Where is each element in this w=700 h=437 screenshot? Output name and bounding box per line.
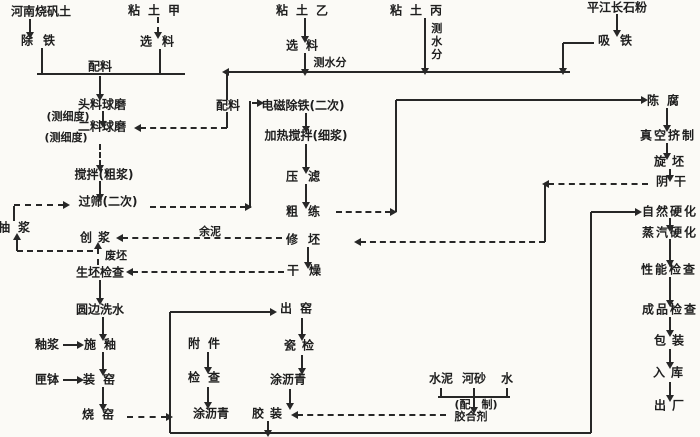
flow-line [99, 280, 101, 299]
flow-line [207, 352, 209, 368]
flow-line [666, 108, 668, 126]
flow-line [140, 127, 227, 129]
node-coat-asphalt: 涂沥青 [270, 374, 306, 387]
flow-line [169, 312, 171, 433]
arrowhead-icon [663, 153, 671, 160]
arrowhead-icon [666, 300, 674, 307]
arrowhead-icon [257, 99, 264, 107]
arrowhead-icon [134, 124, 141, 132]
arrowhead-icon [663, 125, 671, 132]
node-waste-blank: 废坯 [105, 250, 127, 262]
arrowhead-icon [421, 68, 429, 75]
flow-line [226, 112, 228, 128]
flow-line [17, 250, 93, 252]
arrowhead-icon [204, 402, 212, 409]
arrowhead-icon [13, 233, 21, 240]
flow-line [305, 184, 307, 203]
arrowhead-icon [126, 268, 133, 276]
node-fineness-2: (测细度) [44, 132, 87, 144]
node-acc-asphalt: 涂沥青 [193, 408, 229, 421]
node-unload-kiln: 出窑 [280, 303, 320, 316]
arrowhead-icon [298, 334, 306, 341]
flow-line [37, 73, 185, 75]
flow-line [616, 14, 618, 31]
node-cement: 水泥 [429, 373, 453, 386]
flow-line [14, 204, 64, 206]
node-measure-moisture-c: 测水分 [430, 23, 442, 62]
arrowhead-icon [559, 68, 567, 75]
arrowhead-icon [286, 403, 294, 410]
flow-line [99, 181, 101, 195]
flow-line [304, 18, 306, 37]
node-sieve-twice: 过筛(二次) [79, 196, 138, 209]
node-clay-b: 粘土乙 [276, 5, 336, 18]
node-aging: 陈腐 [647, 95, 687, 108]
arrowhead-icon [96, 94, 104, 101]
node-measure-moisture-b: 测水分 [314, 57, 347, 69]
arrowhead-icon [301, 36, 309, 43]
node-saggar: 匣钵 [35, 374, 59, 387]
node-porcelain-check: 瓷检 [284, 340, 320, 353]
flow-line [150, 206, 246, 208]
flow-line [336, 211, 391, 213]
flow-line [170, 432, 591, 434]
arrowhead-icon [77, 376, 84, 384]
flow-line [226, 73, 228, 100]
arrowhead-icon [666, 395, 674, 402]
arrowhead-icon [270, 308, 277, 316]
arrowhead-icon [99, 121, 107, 128]
arrowhead-icon [666, 362, 674, 369]
node-round-edge-wash: 圆边洗水 [76, 304, 124, 317]
node-green-blank-check: 生坯检查 [76, 267, 124, 280]
flow-line [97, 248, 99, 265]
node-water: 水 [501, 373, 513, 386]
flow-line [99, 76, 101, 95]
flow-line [13, 206, 15, 221]
flow-line [301, 318, 303, 335]
flow-line [289, 389, 291, 404]
flow-line [544, 184, 546, 242]
node-natural-harden: 自然硬化 [642, 206, 698, 219]
flow-line [159, 49, 161, 74]
node-henan-alum-clay: 河南烧矾土 [11, 6, 71, 19]
flow-line [122, 237, 282, 239]
flow-line [548, 183, 648, 185]
arrowhead-icon [96, 165, 104, 172]
flow-line [63, 379, 78, 381]
arrowhead-icon [641, 96, 648, 104]
flow-line [249, 101, 251, 208]
arrowhead-icon [666, 330, 674, 337]
arrowhead-icon [302, 167, 310, 174]
flow-line [99, 144, 101, 166]
arrowhead-icon [99, 334, 107, 341]
node-clay-c: 粘土丙 [390, 5, 450, 18]
flow-line [305, 144, 307, 168]
flow-line [304, 53, 306, 70]
arrowhead-icon [99, 369, 107, 376]
flow-line [562, 43, 564, 69]
arrowhead-icon [301, 69, 309, 76]
arrowhead-icon [99, 404, 107, 411]
flow-line [424, 18, 426, 69]
flow-line [228, 71, 570, 73]
arrowhead-icon [302, 202, 310, 209]
node-select-a: 选料 [140, 36, 184, 49]
flow-line [669, 277, 671, 301]
node-clay-a: 粘土甲 [128, 5, 188, 18]
arrowhead-icon [94, 242, 102, 249]
arrowhead-icon [291, 411, 298, 419]
arrowhead-icon [63, 201, 70, 209]
flow-line [563, 42, 594, 44]
flow-line [207, 387, 209, 403]
arrowhead-icon [304, 262, 312, 269]
arrowhead-icon [222, 68, 229, 76]
arrowhead-icon [613, 30, 621, 37]
arrowhead-icon [96, 298, 104, 305]
flow-line [307, 247, 309, 263]
arrowhead-icon [666, 260, 674, 267]
arrowhead-icon [116, 234, 123, 242]
flow-line [157, 17, 159, 33]
node-cement-assemble: 胶装 [252, 408, 288, 421]
node-emag-deiron: 电磁除铁(二次) [262, 100, 345, 113]
flow-line [41, 48, 43, 74]
flow-line [63, 344, 78, 346]
node-accessories: 附件 [188, 338, 228, 351]
flow-line [360, 241, 545, 243]
flow-line [305, 113, 307, 127]
flow-line [591, 211, 636, 213]
flow-line [132, 271, 284, 273]
flow-line [170, 311, 271, 313]
arrowhead-icon [302, 126, 310, 133]
node-batching-1: 配料 [88, 61, 112, 74]
arrowhead-icon [666, 175, 674, 182]
node-batching-2: 配料 [216, 100, 240, 113]
flow-line [395, 100, 397, 212]
flow-line [669, 317, 671, 331]
flow-line [301, 355, 303, 369]
flow-line [669, 382, 671, 396]
arrowhead-icon [635, 208, 642, 216]
flow-line [590, 212, 592, 433]
node-river-sand: 河砂 [462, 373, 486, 386]
arrowhead-icon [154, 32, 162, 39]
flow-line [297, 414, 446, 416]
node-shade-dry: 阴干 [656, 176, 692, 189]
arrowhead-icon [666, 225, 674, 232]
arrowhead-icon [77, 341, 84, 349]
arrowhead-icon [470, 407, 478, 414]
node-jigger-blank: 旋坯 [654, 156, 690, 169]
node-pingjiang-feldspar: 平江长石粉 [587, 2, 647, 15]
flow-line [29, 19, 31, 33]
flow-line [102, 387, 104, 405]
node-glaze-slip: 釉浆 [35, 339, 59, 352]
flow-line [16, 239, 18, 251]
flow-line [127, 416, 167, 418]
flow-line [669, 349, 671, 363]
arrowhead-icon [26, 32, 34, 39]
flow-line [102, 317, 104, 335]
flow-line [669, 239, 671, 261]
node-trim-blank: 修坯 [286, 234, 330, 247]
arrowhead-icon [96, 194, 104, 201]
node-stir-coarse-slip: 搅拌(粗浆) [75, 169, 134, 182]
flowchart-canvas: 河南烧矾土粘土甲粘土乙粘土丙平江长石粉除铁选料选料测水分测水分吸铁配料配料头料球… [0, 0, 700, 437]
flow-line [396, 99, 642, 101]
arrowhead-icon [354, 238, 361, 246]
arrowhead-icon [298, 368, 306, 375]
flow-line [102, 352, 104, 370]
arrowhead-icon [204, 367, 212, 374]
